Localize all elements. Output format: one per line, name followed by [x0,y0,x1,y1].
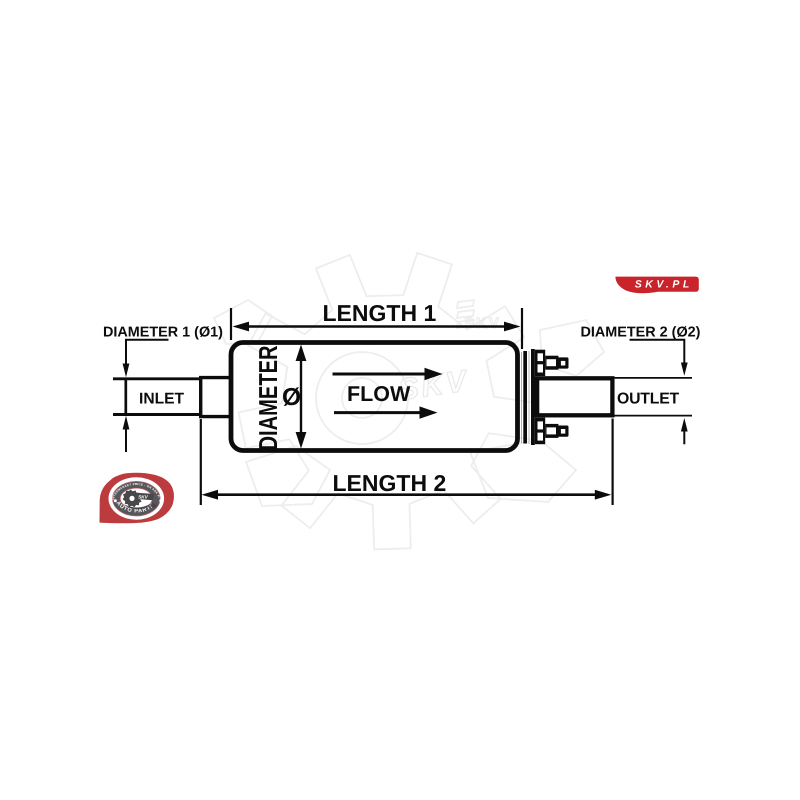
svg-text:SKV: SKV [138,495,148,500]
svg-text:SKV: SKV [464,315,501,332]
svg-text:SKV.PL: SKV.PL [635,279,693,291]
svg-text:DIAMETER: DIAMETER [253,345,283,450]
svg-text:OUTLET: OUTLET [617,390,680,407]
svg-text:DIAMETER 1 (Ø1): DIAMETER 1 (Ø1) [103,325,223,341]
svg-text:DIAMETER 2 (Ø2): DIAMETER 2 (Ø2) [581,325,701,341]
svg-text:INLET: INLET [139,391,185,408]
svg-text:LENGTH 1: LENGTH 1 [323,300,437,326]
svg-text:Ø: Ø [282,384,301,411]
svg-text:LENGTH 2: LENGTH 2 [333,470,447,496]
svg-text:FLOW: FLOW [347,382,411,406]
